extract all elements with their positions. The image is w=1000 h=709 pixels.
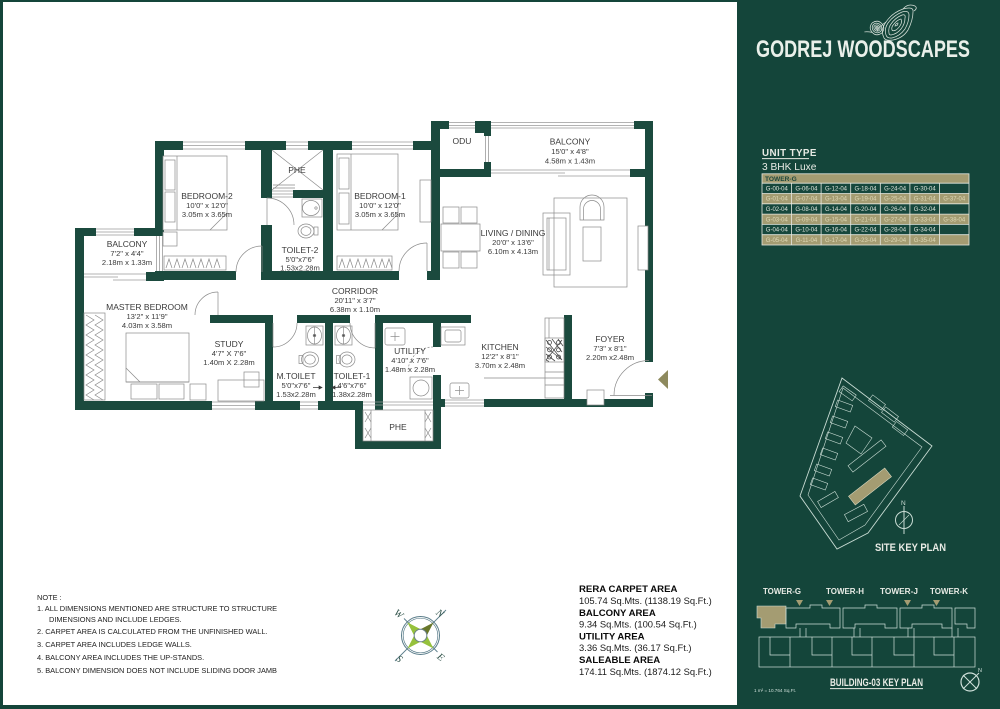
svg-text:N: N (901, 500, 906, 507)
svg-text:UTILITY: UTILITY (394, 346, 426, 356)
svg-text:UTILITY AREA: UTILITY AREA (579, 632, 645, 643)
svg-text:4.03m x 3.58m: 4.03m x 3.58m (122, 321, 172, 330)
svg-text:KITCHEN: KITCHEN (481, 342, 518, 352)
svg-text:1.53x2.28m: 1.53x2.28m (276, 390, 316, 399)
svg-text:20'0" x 13'6": 20'0" x 13'6" (492, 238, 534, 247)
svg-text:7'2" x 4'4": 7'2" x 4'4" (110, 249, 144, 258)
svg-text:G-12-04: G-12-04 (825, 186, 848, 192)
svg-text:PHE: PHE (288, 165, 306, 175)
svg-text:G-37-04: G-37-04 (943, 197, 966, 203)
svg-text:G-10-04: G-10-04 (795, 228, 818, 234)
svg-text:RERA CARPET AREA: RERA CARPET AREA (579, 584, 678, 595)
svg-text:G-00-04: G-00-04 (766, 186, 789, 192)
svg-text:15'0" x 4'8": 15'0" x 4'8" (551, 147, 589, 156)
svg-text:4'10" x 7'6": 4'10" x 7'6" (391, 356, 429, 365)
svg-text:STUDY: STUDY (215, 339, 244, 349)
svg-text:M.TOILET: M.TOILET (276, 371, 315, 381)
svg-text:3.05m x 3.65m: 3.05m x 3.65m (182, 210, 232, 219)
svg-text:1 m² = 10.764 Sq.Ft.: 1 m² = 10.764 Sq.Ft. (754, 688, 796, 693)
svg-text:3 BHK Luxe: 3 BHK Luxe (762, 162, 817, 173)
svg-text:G-35-04: G-35-04 (914, 238, 937, 244)
svg-text:G-26-04: G-26-04 (884, 207, 907, 213)
svg-text:2. CARPET AREA IS CALCULATED: 2. CARPET AREA IS CALCULATED FROM THE UN… (37, 627, 268, 636)
svg-text:105.74 Sq.Mts. (1138.19 Sq.Ft.: 105.74 Sq.Mts. (1138.19 Sq.Ft.) (579, 595, 712, 606)
svg-text:TOWER-H: TOWER-H (826, 586, 864, 596)
svg-text:GODREJ WOODSCAPES: GODREJ WOODSCAPES (756, 36, 970, 63)
svg-text:6.10m x 4.13m: 6.10m x 4.13m (488, 247, 538, 256)
svg-text:G-22-04: G-22-04 (854, 228, 877, 234)
svg-text:BEDROOM-2: BEDROOM-2 (181, 191, 233, 201)
svg-text:4'6"x7'6": 4'6"x7'6" (338, 381, 367, 390)
svg-text:G-38-04: G-38-04 (943, 217, 966, 223)
svg-text:CORRIDOR: CORRIDOR (332, 286, 378, 296)
svg-text:G-03-04: G-03-04 (766, 217, 789, 223)
svg-text:BUILDING-03 KEY PLAN: BUILDING-03 KEY PLAN (830, 677, 923, 689)
svg-text:3.05m x 3.65m: 3.05m x 3.65m (355, 210, 405, 219)
svg-text:4. BALCONY AREA INCLUDES THE: 4. BALCONY AREA INCLUDES THE UP-STANDS. (37, 653, 204, 662)
svg-text:G-07-04: G-07-04 (795, 197, 818, 203)
svg-text:G-09-04: G-09-04 (795, 217, 818, 223)
svg-text:6.38m x 1.10m: 6.38m x 1.10m (330, 305, 380, 314)
svg-text:PHE: PHE (389, 422, 407, 432)
svg-text:TOWER-K: TOWER-K (930, 586, 969, 596)
svg-text:3.36 Sq.Mts. (36.17 Sq.Ft.): 3.36 Sq.Mts. (36.17 Sq.Ft.) (579, 642, 692, 653)
svg-text:G-28-04: G-28-04 (884, 228, 907, 234)
svg-text:G-32-04: G-32-04 (914, 207, 937, 213)
svg-text:G-08-04: G-08-04 (795, 207, 818, 213)
svg-text:12'2" x 8'1": 12'2" x 8'1" (481, 352, 519, 361)
svg-text:5'0"x7'6": 5'0"x7'6" (282, 381, 311, 390)
svg-text:G-31-04: G-31-04 (914, 197, 937, 203)
svg-text:G-30-04: G-30-04 (914, 186, 937, 192)
svg-text:10'0" x 12'0": 10'0" x 12'0" (186, 201, 228, 210)
svg-text:G-24-04: G-24-04 (884, 186, 907, 192)
svg-text:LIVING / DINING: LIVING / DINING (481, 228, 546, 238)
svg-text:G-23-04: G-23-04 (854, 238, 877, 244)
svg-text:BALCONY: BALCONY (107, 239, 148, 249)
svg-text:TOWER-J: TOWER-J (880, 586, 918, 596)
svg-text:G-13-04: G-13-04 (825, 197, 848, 203)
svg-text:G-04-04: G-04-04 (766, 228, 789, 234)
svg-text:20'11" x 3'7": 20'11" x 3'7" (334, 296, 375, 305)
svg-text:13'2" x 11'9": 13'2" x 11'9" (126, 312, 167, 321)
svg-text:1.53x2.28m: 1.53x2.28m (280, 264, 320, 273)
svg-text:1.48m x 2.28m: 1.48m x 2.28m (385, 365, 435, 374)
svg-text:G-27-04: G-27-04 (884, 217, 907, 223)
svg-text:G-17-04: G-17-04 (825, 238, 848, 244)
svg-text:4'7" X 7'6": 4'7" X 7'6" (212, 349, 247, 358)
svg-text:FOYER: FOYER (595, 334, 624, 344)
svg-text:G-19-04: G-19-04 (854, 197, 877, 203)
svg-text:G-05-04: G-05-04 (766, 238, 789, 244)
svg-text:G-33-04: G-33-04 (914, 217, 937, 223)
svg-text:BALCONY: BALCONY (550, 137, 591, 147)
svg-text:UNIT TYPE: UNIT TYPE (762, 148, 817, 159)
svg-text:7'3" x 8'1": 7'3" x 8'1" (593, 344, 627, 353)
svg-text:174.11 Sq.Mts. (1874.12 Sq.Ft.: 174.11 Sq.Mts. (1874.12 Sq.Ft.) (579, 666, 712, 677)
svg-text:BEDROOM-1: BEDROOM-1 (354, 191, 406, 201)
svg-text:10'0" x 12'0": 10'0" x 12'0" (359, 201, 401, 210)
svg-text:G-25-04: G-25-04 (884, 197, 907, 203)
svg-text:G-11-04: G-11-04 (796, 238, 818, 244)
svg-text:5. BALCONY DIMENSION DOES NOT: 5. BALCONY DIMENSION DOES NOT INCLUDE SL… (37, 666, 277, 675)
svg-text:G-34-04: G-34-04 (914, 228, 937, 234)
svg-text:2.20m x2.48m: 2.20m x2.48m (586, 353, 634, 362)
svg-text:N: N (978, 668, 982, 674)
svg-text:G-29-04: G-29-04 (884, 238, 907, 244)
svg-text:G-18-04: G-18-04 (854, 186, 877, 192)
svg-text:G-16-04: G-16-04 (825, 228, 848, 234)
svg-text:G-20-04: G-20-04 (854, 207, 877, 213)
svg-text:3. CARPET AREA INCLUDES LEDGE: 3. CARPET AREA INCLUDES LEDGE WALLS. (37, 640, 192, 649)
svg-text:G-15-04: G-15-04 (825, 217, 848, 223)
svg-text:TOILET-1: TOILET-1 (334, 371, 371, 381)
svg-text:MASTER BEDROOM: MASTER BEDROOM (106, 302, 188, 312)
svg-text:4.58m x 1.43m: 4.58m x 1.43m (545, 157, 595, 166)
svg-text:3.70m x 2.48m: 3.70m x 2.48m (475, 361, 525, 370)
svg-text:SALEABLE AREA: SALEABLE AREA (579, 655, 660, 666)
svg-text:ODU: ODU (453, 136, 472, 146)
svg-text:SITE KEY PLAN: SITE KEY PLAN (875, 542, 946, 554)
svg-text:1. ALL DIMENSIONS MENTIONED A: 1. ALL DIMENSIONS MENTIONED ARE STRUCTUR… (37, 604, 277, 613)
svg-text:G-21-04: G-21-04 (854, 217, 877, 223)
svg-text:DIMENSIONS AND INCLUDE LEDGES.: DIMENSIONS AND INCLUDE LEDGES. (49, 615, 182, 624)
svg-text:TOWER-G: TOWER-G (765, 176, 797, 183)
svg-text:NOTE :: NOTE : (37, 593, 62, 602)
svg-text:G-14-04: G-14-04 (825, 207, 848, 213)
svg-text:G-02-04: G-02-04 (766, 207, 789, 213)
svg-text:BALCONY AREA: BALCONY AREA (579, 608, 656, 619)
svg-text:1.40m X 2.28m: 1.40m X 2.28m (203, 358, 255, 367)
svg-text:2.18m x 1.33m: 2.18m x 1.33m (102, 258, 152, 267)
svg-text:9.34 Sq.Mts. (100.54 Sq.Ft.): 9.34 Sq.Mts. (100.54 Sq.Ft.) (579, 619, 697, 630)
svg-text:TOWER-G: TOWER-G (763, 586, 801, 596)
svg-text:G-01-04: G-01-04 (766, 197, 789, 203)
svg-text:G-06-04: G-06-04 (795, 186, 818, 192)
svg-text:TOILET-2: TOILET-2 (282, 245, 319, 255)
svg-text:1.38x2.28m: 1.38x2.28m (332, 390, 372, 399)
